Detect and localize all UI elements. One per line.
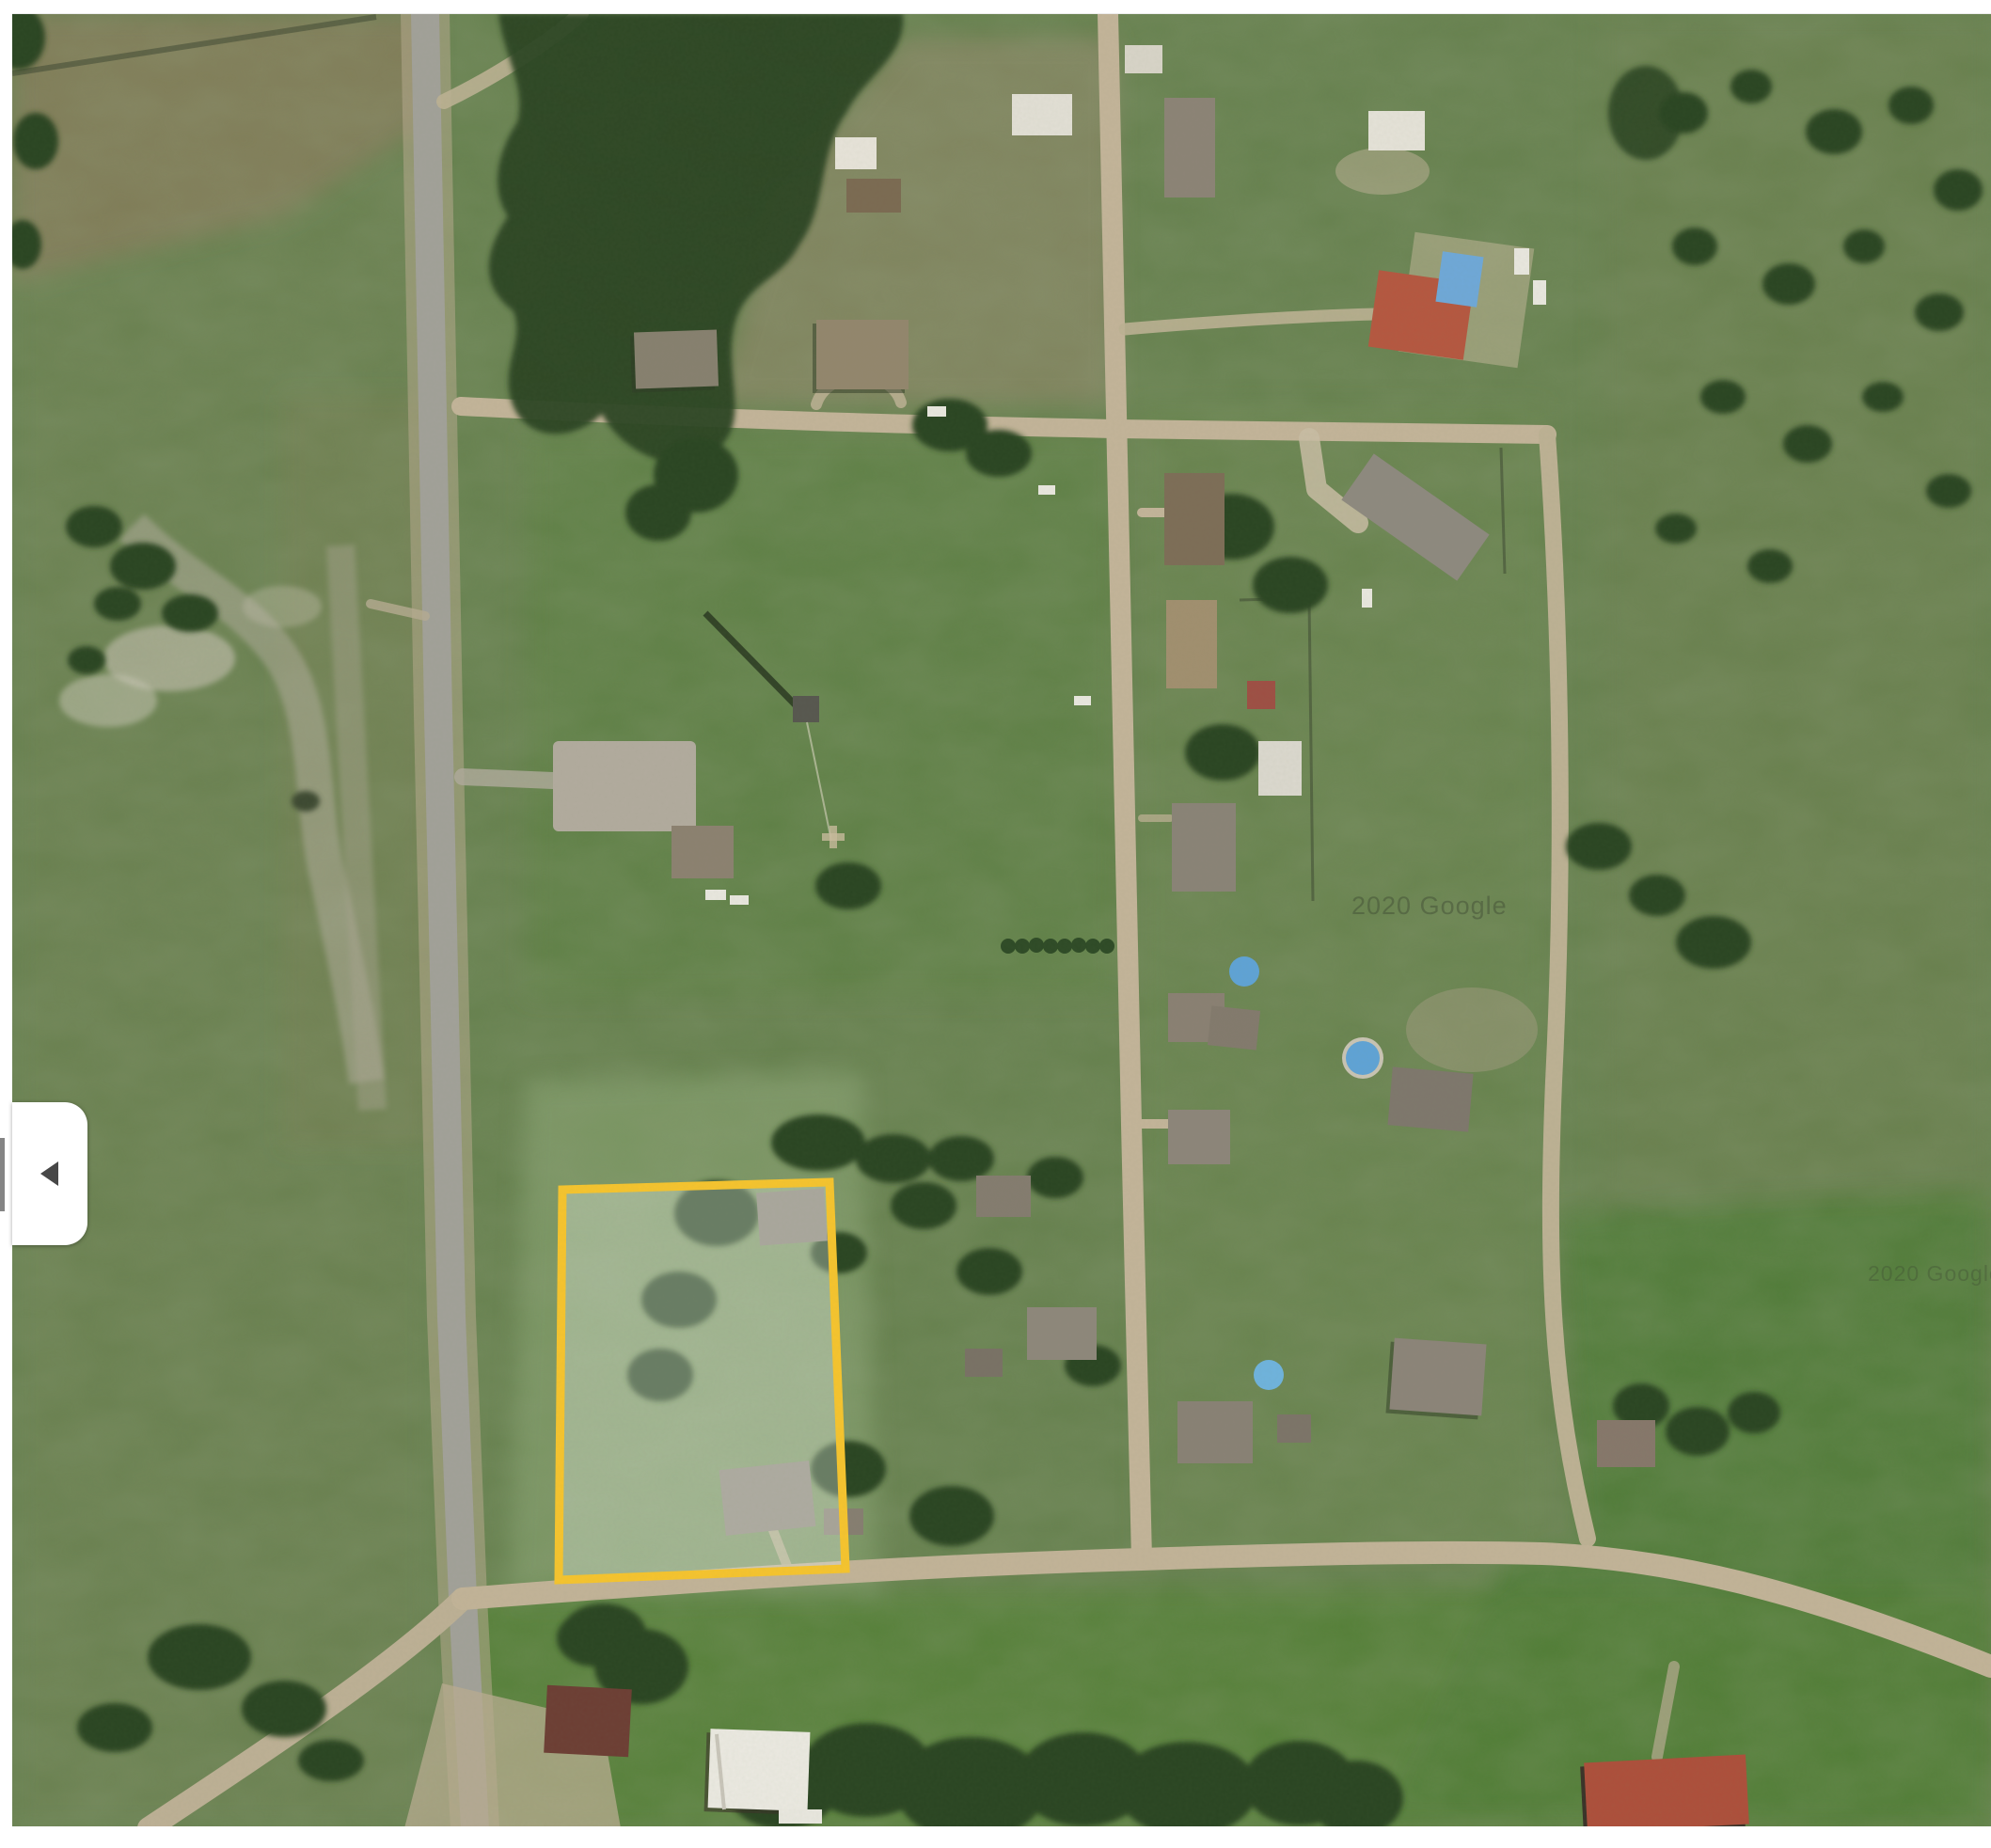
top-margin [0, 0, 1991, 14]
side-panel-edge [0, 1138, 5, 1211]
chevron-left-icon [40, 1161, 58, 1186]
side-panel-collapse-button[interactable] [12, 1102, 87, 1245]
satellite-imagery[interactable]: 2020 Google 2020 Google [12, 13, 1991, 1826]
map-viewport[interactable]: 2020 Google 2020 Google [12, 13, 1991, 1826]
left-margin [0, 13, 12, 1826]
screenshot-root: { "map": { "view_type": "satellite-image… [0, 0, 1991, 1848]
grain-overlay [12, 13, 1991, 1826]
bottom-margin [0, 1826, 1991, 1848]
